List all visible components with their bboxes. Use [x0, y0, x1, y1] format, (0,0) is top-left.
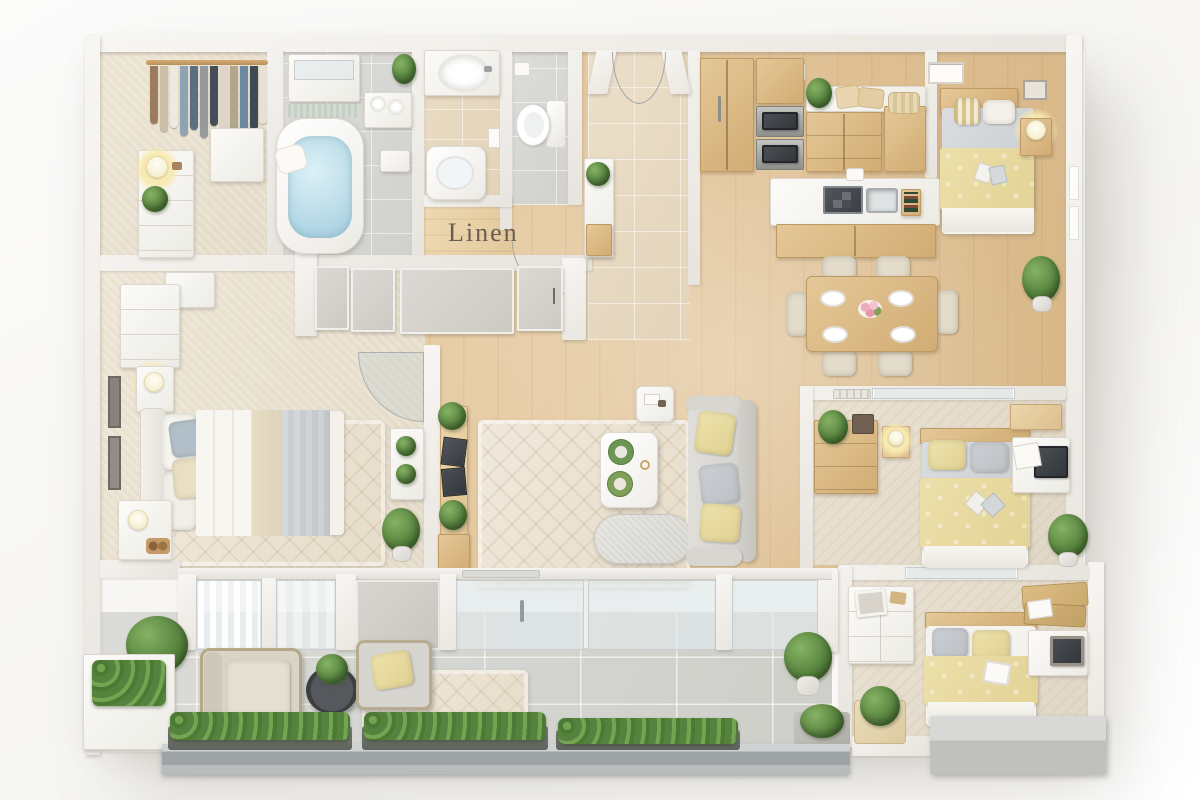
railing-hedge-a	[170, 712, 350, 740]
master-lamp-north	[144, 372, 164, 392]
cutting-board-b	[857, 87, 885, 110]
exterior-corner-wall-block	[930, 716, 1106, 774]
bedroom2-papers	[1012, 442, 1042, 470]
sofa-pillow-yellow-north	[693, 410, 736, 457]
oven-upper-cabinet	[756, 58, 804, 104]
hanging-garment	[210, 66, 218, 126]
master-lamp-south	[128, 510, 148, 530]
counter-basket	[888, 92, 920, 114]
island-faucet	[846, 168, 864, 181]
wall-art-dark-b	[108, 436, 121, 490]
island-sink	[866, 188, 898, 213]
kitchen-end-cabinet	[884, 106, 926, 172]
master-duvet-white	[196, 410, 254, 536]
bedroom2-left-wall	[800, 386, 813, 572]
bedroom3-window	[905, 567, 1018, 579]
bed-nook-wall-frame	[1023, 80, 1047, 100]
floor-plan-render: Linen	[0, 0, 1200, 800]
dinner-plate	[888, 290, 914, 307]
bedroom2-wall-tray	[1010, 404, 1062, 430]
ac-vent	[833, 389, 871, 399]
bath-stool	[380, 150, 410, 172]
media-console-plant-south	[439, 500, 467, 530]
sofa-armrest-south	[686, 548, 742, 566]
coffee-table-plant-bowl-b	[607, 471, 633, 497]
glass-slider-panel-b	[588, 580, 716, 650]
ottoman-bench	[594, 514, 692, 564]
door-post-d	[440, 574, 456, 650]
master-floor-plant-pot	[392, 546, 412, 562]
sofa-pillow-yellow-south	[699, 503, 742, 544]
door-post-c	[336, 574, 356, 650]
bath-ledge	[288, 104, 360, 118]
wall-corner-a	[295, 252, 317, 336]
slider-handle	[520, 600, 524, 622]
bedroom3-decor-item	[889, 591, 907, 605]
closet-hanging-rod	[146, 60, 268, 65]
patio-table-plant	[316, 654, 348, 684]
hanging-garment	[230, 66, 238, 132]
nightstand-tray	[146, 538, 170, 554]
bedroom2-dresser-plant	[818, 410, 848, 444]
patio-plant-east-pot	[796, 676, 820, 696]
bedroom2-plant-pot	[1058, 552, 1078, 567]
bedroom2-pillow-gray	[970, 442, 1008, 472]
bath-plant	[392, 54, 416, 84]
hanging-garment	[190, 66, 198, 130]
flower-centerpiece	[858, 300, 882, 318]
right-wall-window-a	[1069, 166, 1079, 200]
bedroom2-pillow-yellow	[928, 440, 966, 470]
bedroom2-lamp	[888, 430, 904, 446]
railing-hedge-b	[364, 712, 546, 740]
right-wall-window-b	[1069, 206, 1079, 240]
bath-sliding-door-b	[351, 268, 395, 332]
white-curtain	[198, 581, 260, 648]
patio-chair-yellow-pillow	[369, 649, 415, 691]
island-base-split	[854, 226, 856, 256]
toilet-paper-holder	[514, 62, 530, 76]
entry-console-plant	[586, 162, 610, 186]
coffee-table-gold-ring	[640, 460, 650, 470]
wine-bottles	[904, 192, 918, 212]
hanging-garment	[220, 66, 228, 134]
bedroom3-monitor	[1050, 636, 1084, 666]
master-duvet-foot-fold	[330, 411, 344, 535]
closet-lamp	[146, 156, 168, 178]
closet-decor-item	[172, 162, 182, 170]
slider-hardware	[462, 570, 540, 578]
sofa-pillow-gray	[698, 462, 740, 506]
bath-sliding-door-a	[315, 266, 349, 330]
bedroom3-yellow-duvet	[924, 656, 1038, 704]
dining-chair-east	[936, 290, 958, 334]
bedroom3-shelf-paper	[1027, 598, 1053, 619]
coffee-table-plant-bowl-a	[608, 439, 634, 465]
bedroom2-window	[872, 388, 1015, 399]
hanging-garment	[250, 66, 258, 130]
sofa-backrest	[738, 400, 756, 562]
hanging-garment	[150, 66, 158, 124]
dining-chair-west	[786, 292, 808, 336]
kitchen-drawer-split	[843, 114, 845, 170]
toilet-entry-wall	[568, 50, 582, 205]
washroom-shelf-item	[488, 128, 500, 148]
bedroom2-foot-fold	[924, 546, 1026, 568]
closet-potted-plant	[142, 186, 168, 212]
hanging-garment	[200, 66, 208, 138]
toilet-seat-inner	[524, 112, 544, 138]
wall-art-frame	[928, 62, 964, 84]
master-tall-chest	[120, 284, 180, 368]
round-sink-basin	[438, 54, 490, 92]
door-post-e	[716, 574, 732, 650]
bed-nook-white-pillow	[983, 100, 1015, 124]
bedroom3-plant	[860, 686, 900, 726]
dining-corner-plant-pot	[1032, 296, 1052, 312]
bedroom3-tray-on-bed	[982, 660, 1011, 686]
living-patio-sill	[100, 560, 180, 578]
books-on-bed	[988, 165, 1007, 186]
kitchen-left-wall	[688, 50, 700, 285]
patio-corner-plant	[800, 704, 844, 738]
kitchen-counter-plant	[806, 78, 832, 108]
oven-upper-window	[762, 112, 798, 130]
bath-washroom-wall	[412, 50, 424, 268]
island-base	[776, 224, 936, 258]
bedroom3-picture-frame	[855, 589, 888, 618]
oven-lower-window	[762, 145, 798, 163]
entry-console-drawer	[586, 224, 612, 256]
wall-corner-b	[562, 258, 586, 340]
door-handle	[553, 288, 555, 304]
rolled-towel-b	[388, 99, 404, 115]
hanging-garment	[259, 66, 267, 124]
railing-hedge-c	[558, 718, 738, 744]
hanging-garment	[170, 66, 178, 128]
dining-chair-south-b	[878, 350, 912, 376]
patio-plant-east	[784, 632, 832, 682]
sheer-curtain	[278, 581, 334, 648]
media-drawer-unit	[438, 534, 470, 570]
bath-shelf-glass	[294, 60, 354, 80]
cooktop-burner	[833, 192, 851, 208]
linen-room-label: Linen	[448, 218, 538, 248]
bed-nook-lamp	[1026, 120, 1046, 140]
bedroom3-pillow-gray	[932, 628, 968, 658]
side-table-item	[658, 400, 666, 407]
rolled-towel-a	[370, 96, 386, 112]
refrigerator-handle	[718, 96, 721, 122]
bedroom2-dresser-box	[852, 414, 874, 434]
tv-panel-a	[440, 437, 467, 468]
tv-panel-b	[441, 467, 467, 497]
master-duvet-gray-band	[282, 410, 330, 536]
planter-box-west-greenery	[92, 660, 166, 706]
closet-storage-bench	[210, 128, 264, 182]
console-succulent-a	[396, 436, 416, 456]
wall-art-dark-a	[108, 376, 121, 428]
media-console-plant-north	[438, 402, 466, 430]
refrigerator-door-split	[726, 60, 728, 170]
hall-closet-door	[517, 266, 563, 331]
linen-sliding-door-wide	[400, 268, 514, 334]
dinner-plate	[890, 326, 916, 343]
master-duvet-beige-band	[252, 410, 282, 536]
bed-nook-foot-fold	[942, 208, 1034, 232]
bed-nook-striped-pillow	[954, 98, 980, 125]
door-post-b	[262, 578, 276, 650]
dinner-plate	[820, 290, 846, 307]
dining-chair-south-a	[822, 350, 856, 376]
sink-faucet	[484, 66, 492, 72]
hanging-garment	[180, 66, 188, 136]
dinner-plate	[822, 326, 848, 343]
washlet-bowl	[436, 156, 474, 190]
console-succulent-b	[396, 464, 416, 484]
hanging-garment	[160, 66, 168, 132]
